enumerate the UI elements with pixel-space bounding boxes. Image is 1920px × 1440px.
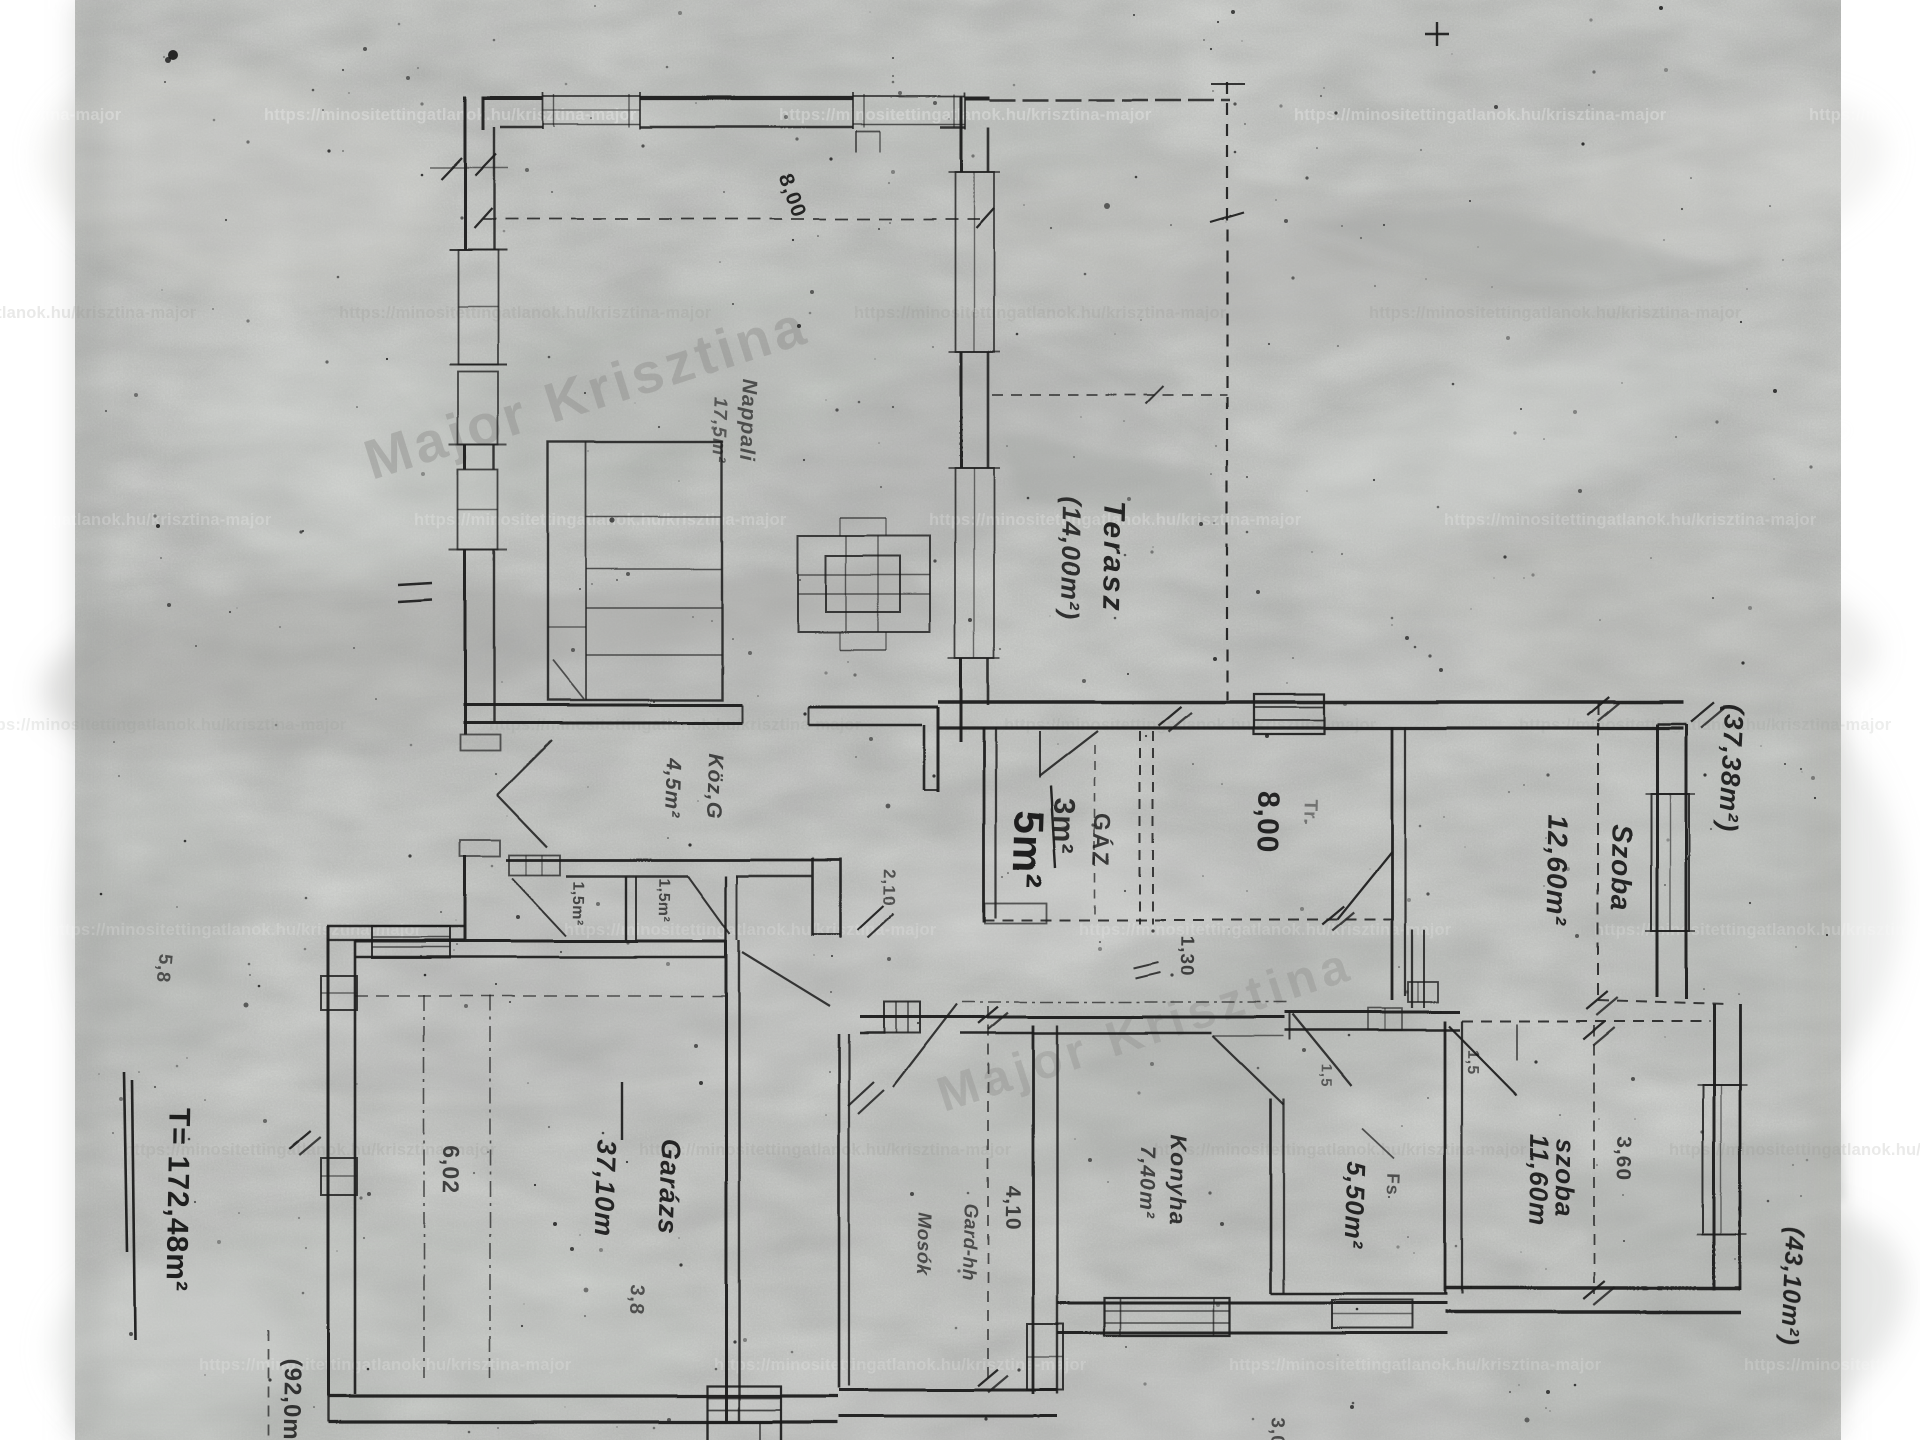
svg-text:Garázs: Garázs	[652, 1138, 685, 1235]
svg-text:https://minositettingatlanok.h: https://minositettingatlanok.hu/krisztin…	[0, 304, 197, 322]
svg-text:https://minositettingatlanok.h: https://minositettingatlanok.hu/krisztin…	[1154, 1141, 1527, 1159]
svg-text:4,10: 4,10	[1001, 1185, 1025, 1230]
svg-text:Terasz: Terasz	[1096, 501, 1131, 614]
svg-text:Mosók: Mosók	[912, 1213, 935, 1277]
svg-text:3,8: 3,8	[624, 1284, 647, 1316]
svg-text:https://minositettingatlanok.h: https://minositettingatlanok.hu/krisztin…	[414, 511, 787, 529]
svg-text:https://minositettingatlanok.h: https://minositettingatlanok.hu/krisztin…	[1669, 1141, 1920, 1159]
svg-text:https://minositettingatlanok.h: https://minositettingatlanok.hu/krisztin…	[49, 921, 422, 939]
svg-text:https://minositettingatlanok.h: https://minositettingatlanok.hu/krisztin…	[1079, 921, 1452, 939]
svg-text:37,10m: 37,10m	[588, 1139, 621, 1238]
svg-text:Nappali: Nappali	[736, 378, 762, 462]
svg-text:https://minositettingatlanok.h: https://minositettingatlanok.hu/krisztin…	[1809, 106, 1920, 124]
svg-text:(14,00m²): (14,00m²)	[1055, 496, 1087, 620]
svg-text:https://minositettingatlanok.h: https://minositettingatlanok.hu/krisztin…	[639, 1141, 1012, 1159]
svg-text:T= 172,48m²: T= 172,48m²	[159, 1108, 195, 1292]
svg-text:https://minositettingatlanok.h: https://minositettingatlanok.hu/krisztin…	[199, 1356, 572, 1374]
svg-text:https://minositettingatlanok.h: https://minositettingatlanok.hu/krisztin…	[1369, 304, 1742, 322]
svg-text:1,5m²: 1,5m²	[655, 878, 673, 923]
svg-text:7,40m²: 7,40m²	[1134, 1146, 1158, 1219]
svg-text:https://minositettingatlanok.h: https://minositettingatlanok.hu/krisztin…	[1444, 511, 1817, 529]
svg-text:Köz,G: Köz,G	[702, 753, 727, 819]
svg-text:3,0: 3,0	[1267, 1417, 1289, 1440]
svg-text:6,02: 6,02	[438, 1146, 465, 1195]
svg-text:3,60: 3,60	[1612, 1135, 1636, 1180]
svg-text:1,30: 1,30	[1176, 935, 1198, 976]
svg-text:(92,0m: (92,0m	[277, 1359, 305, 1440]
svg-text:https://minositettingatlanok.h: https://minositettingatlanok.hu/krisztin…	[854, 304, 1227, 322]
svg-text:https://minositettingatlanok.h: https://minositettingatlanok.hu/krisztin…	[489, 716, 862, 734]
svg-text:1,5m²: 1,5m²	[569, 881, 587, 926]
svg-text:GÁZ: GÁZ	[1088, 813, 1117, 868]
svg-text:5,50m²: 5,50m²	[1338, 1161, 1371, 1251]
svg-text:https://minositettingatlanok.h: https://minositettingatlanok.hu/krisztin…	[1229, 1356, 1602, 1374]
svg-text:5,8: 5,8	[152, 953, 175, 984]
svg-text:https://minositettingatlanok.h: https://minositettingatlanok.hu/krisztin…	[1744, 1356, 1920, 1374]
svg-text:12,60m²: 12,60m²	[1541, 814, 1574, 926]
svg-text:https://minositettingatlanok.h: https://minositettingatlanok.hu/krisztin…	[1594, 921, 1920, 939]
svg-text:5m²: 5m²	[1004, 810, 1054, 889]
svg-text:https://minositettingatlanok.h: https://minositettingatlanok.hu/krisztin…	[0, 106, 122, 124]
svg-text:Tr.: Tr.	[1299, 799, 1320, 825]
svg-text:https://minositettingatlanok.h: https://minositettingatlanok.hu/krisztin…	[339, 304, 712, 322]
svg-text:https://minositettingatlanok.h: https://minositettingatlanok.hu/krisztin…	[0, 716, 347, 734]
svg-text:2,10: 2,10	[880, 869, 900, 906]
svg-text:https://minositettingatlanok.h: https://minositettingatlanok.hu/krisztin…	[1519, 716, 1892, 734]
svg-text:Fs: Fs	[1383, 1172, 1404, 1196]
svg-text:https://minositettingatlanok.h: https://minositettingatlanok.hu/krisztin…	[264, 106, 637, 124]
svg-text:Konyha: Konyha	[1164, 1135, 1192, 1226]
svg-text:https://minositettingatlanok.h: https://minositettingatlanok.hu/krisztin…	[1004, 716, 1377, 734]
svg-text:https://minositettingatlanok.h: https://minositettingatlanok.hu/krisztin…	[0, 1356, 57, 1374]
svg-text:11,60m: 11,60m	[1523, 1134, 1555, 1227]
svg-text:https://minositettingatlanok.h: https://minositettingatlanok.hu/krisztin…	[0, 511, 272, 529]
svg-text:4,5m²: 4,5m²	[660, 757, 685, 819]
svg-text:https://minositettingatlanok.h: https://minositettingatlanok.hu/krisztin…	[714, 1356, 1087, 1374]
svg-text:17,5m²: 17,5m²	[708, 397, 731, 464]
svg-text:Gard-hh: Gard-hh	[958, 1203, 982, 1281]
svg-text:1,5: 1,5	[1318, 1064, 1335, 1088]
svg-text:https://minositettingatlanok.h: https://minositettingatlanok.hu/krisztin…	[1294, 106, 1667, 124]
svg-text:1,5: 1,5	[1464, 1049, 1481, 1075]
svg-text:Szoba: Szoba	[1605, 824, 1638, 912]
svg-text:8,00: 8,00	[1250, 791, 1284, 854]
svg-text:https://minositettingatlanok.h: https://minositettingatlanok.hu/krisztin…	[564, 921, 937, 939]
